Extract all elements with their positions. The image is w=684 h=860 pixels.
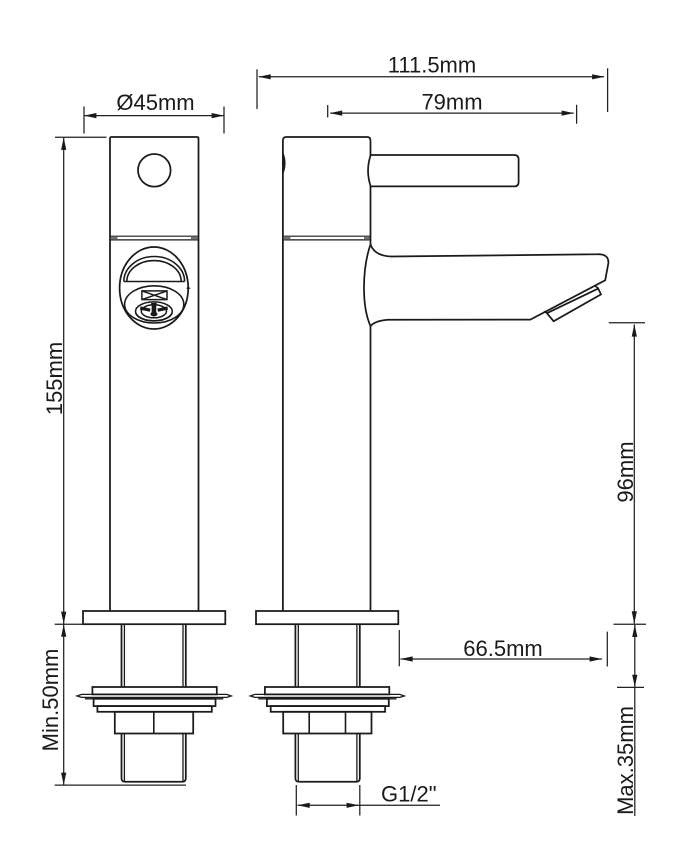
svg-text:79mm: 79mm [421, 90, 482, 115]
svg-text:Min.50mm: Min.50mm [38, 649, 63, 752]
svg-text:66.5mm: 66.5mm [463, 636, 542, 661]
svg-text:155mm: 155mm [42, 342, 67, 415]
svg-text:111.5mm: 111.5mm [388, 53, 476, 78]
svg-text:Ø45mm: Ø45mm [116, 90, 194, 115]
svg-text:G1/2": G1/2" [381, 782, 437, 807]
svg-text:Max.35mm: Max.35mm [613, 706, 638, 815]
svg-text:96mm: 96mm [613, 441, 638, 502]
